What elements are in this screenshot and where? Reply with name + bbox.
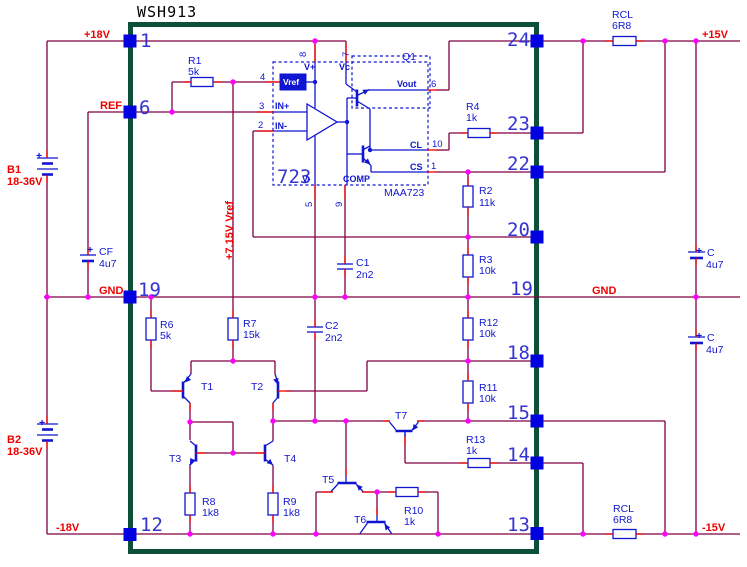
pad-pin-24	[531, 35, 544, 48]
r1-value: 5k	[188, 66, 200, 78]
schematic-canvas: WSH913 1 6 19 12 24 23 22 20 19 18 15 14…	[0, 0, 747, 567]
pin-number-24: 24	[507, 29, 530, 51]
resistor-r2	[463, 186, 473, 207]
pad-pin-20	[531, 231, 544, 244]
capacitor-c2	[307, 327, 323, 332]
resistor-r6	[146, 318, 156, 340]
ic-comp-label: COMP	[343, 174, 370, 184]
pad-pin-12	[124, 528, 137, 541]
c-bottom-ref: C	[707, 332, 715, 344]
net-label-plus18v: +18V	[84, 29, 111, 41]
resistor-r8	[185, 493, 195, 515]
ic-vref-label: Vref	[283, 77, 299, 87]
c-top-value: 4u7	[706, 259, 724, 271]
q1-label: Q1	[402, 51, 416, 63]
r8-value: 1k8	[202, 507, 219, 519]
pad-pin-14	[531, 457, 544, 470]
c1-value: 2n2	[356, 269, 374, 281]
resistor-r11	[463, 381, 473, 403]
b1-ref: B1	[7, 164, 21, 176]
t6-label: T6	[354, 514, 366, 526]
b2-ref: B2	[7, 434, 21, 446]
resistor-r4	[468, 129, 490, 138]
r11-value: 10k	[479, 393, 497, 405]
pad-pin-13	[531, 527, 544, 540]
ic-vplus-label: V+	[304, 62, 315, 72]
ic-cl-label: CL	[410, 140, 422, 150]
pin-number-19-right: 19	[510, 278, 533, 300]
t5-label: T5	[322, 474, 334, 486]
resistor-r12	[463, 318, 473, 340]
r2-ref: R2	[479, 185, 493, 197]
ic-inminus-label: IN-	[275, 121, 287, 131]
ic-part-number: MAA723	[384, 187, 424, 199]
pin-number-22: 22	[507, 153, 530, 175]
pad-pin-23	[531, 127, 544, 140]
resistor-rcl-bottom	[613, 530, 636, 539]
pad-pin-22	[531, 166, 544, 179]
b2-value: 18-36V	[7, 446, 43, 458]
c2-ref: C2	[325, 320, 339, 332]
t3-label: T3	[169, 453, 181, 465]
opamp-triangle	[307, 104, 337, 140]
resistor-r1	[191, 78, 213, 87]
ic-stub-9: 9	[334, 202, 345, 207]
b1-plus-icon: +	[36, 150, 42, 162]
r3-value: 10k	[479, 265, 497, 277]
ic-stub-3: 3	[259, 101, 264, 112]
cf-ref: CF	[99, 246, 113, 258]
c-top-ref: C	[707, 247, 715, 259]
resistor-r10	[396, 488, 418, 497]
b1-value: 18-36V	[7, 176, 43, 188]
resistor-r3	[463, 255, 473, 277]
pad-pin-1	[124, 35, 137, 48]
transistor-t4	[265, 441, 273, 465]
rcl-bottom-value: 6R8	[613, 514, 632, 526]
ic-stub-1: 1	[431, 161, 436, 172]
pin-number-20: 20	[507, 219, 530, 241]
transistor-t1	[183, 374, 191, 403]
transistor-t3	[190, 441, 196, 465]
ic-inplus-label: IN+	[275, 101, 289, 111]
net-label-ref: REF	[100, 100, 122, 112]
ic-vout-label: Vout	[397, 79, 416, 89]
ic-stub-8: 8	[298, 52, 309, 57]
transistor-cl-limit	[347, 146, 371, 166]
pad-pin-18	[531, 355, 544, 368]
pad-pin-15	[531, 415, 544, 428]
t2-label: T2	[251, 381, 263, 393]
capacitor-c1	[337, 264, 353, 269]
c-bottom-plus-icon: +	[696, 330, 702, 342]
c-top-plus-icon: +	[696, 245, 702, 257]
pin-number-14: 14	[507, 444, 530, 466]
cf-plus-icon: +	[87, 244, 93, 256]
resistor-rcl-top	[613, 37, 636, 46]
net-label-plus15v: +15V	[702, 29, 729, 41]
pin-number-13: 13	[507, 514, 530, 536]
ic-stub-6: 6	[431, 79, 436, 90]
pin-number-18: 18	[507, 342, 530, 364]
ic-stub-7: 7	[341, 52, 352, 57]
r7-value: 15k	[243, 329, 261, 341]
pin-number-6: 6	[139, 97, 150, 119]
ic-vc-label: Vc	[339, 62, 350, 72]
r12-value: 10k	[479, 328, 497, 340]
schematic-title: WSH913	[137, 3, 197, 21]
net-label-vref-rail: +7.15V Vref	[224, 201, 236, 260]
ic-cs-label: CS	[410, 162, 423, 172]
pin-number-23: 23	[507, 113, 530, 135]
ic-vminus-label: V-	[302, 174, 311, 184]
net-label-minus15v: -15V	[702, 522, 726, 534]
net-label-minus18v: -18V	[56, 522, 80, 534]
pin-number-19-left: 19	[138, 279, 161, 301]
resistor-r7	[228, 318, 238, 340]
pin-number-12: 12	[140, 514, 163, 536]
cf-value: 4u7	[99, 258, 117, 270]
r4-value: 1k	[466, 112, 478, 124]
t7-label: T7	[395, 410, 407, 422]
schematic-drawing: WSH913 1 6 19 12 24 23 22 20 19 18 15 14…	[0, 0, 747, 567]
t1-label: T1	[201, 381, 213, 393]
transistor-t7	[390, 422, 419, 437]
ic-stub-2: 2	[258, 120, 263, 131]
ic-stub-5: 5	[304, 202, 315, 207]
c2-value: 2n2	[325, 332, 343, 344]
r6-value: 5k	[160, 330, 172, 342]
transistor-t2	[273, 374, 279, 403]
c1-ref: C1	[356, 257, 370, 269]
q1-outline	[352, 56, 430, 108]
pad-pin-19	[124, 291, 137, 304]
r13-value: 1k	[466, 445, 478, 457]
r2-value: 11k	[479, 197, 496, 209]
pin-number-1: 1	[140, 30, 151, 52]
b2-plus-icon: +	[39, 417, 45, 429]
r9-value: 1k8	[283, 507, 300, 519]
net-label-gnd-left: GND	[99, 285, 124, 297]
ic-stub-4: 4	[260, 72, 265, 83]
resistor-r9	[268, 493, 278, 515]
resistor-r13	[468, 459, 490, 468]
pin-number-15: 15	[507, 402, 530, 424]
pad-pin-6	[124, 106, 137, 119]
rcl-top-value: 6R8	[612, 20, 631, 32]
transistor-t5	[331, 476, 363, 492]
transistor-q1	[346, 84, 370, 109]
r10-value: 1k	[404, 516, 416, 528]
c-bottom-value: 4u7	[706, 344, 724, 356]
ic-stub-10: 10	[432, 139, 443, 150]
t4-label: T4	[284, 453, 296, 465]
net-label-gnd-right: GND	[592, 285, 617, 297]
